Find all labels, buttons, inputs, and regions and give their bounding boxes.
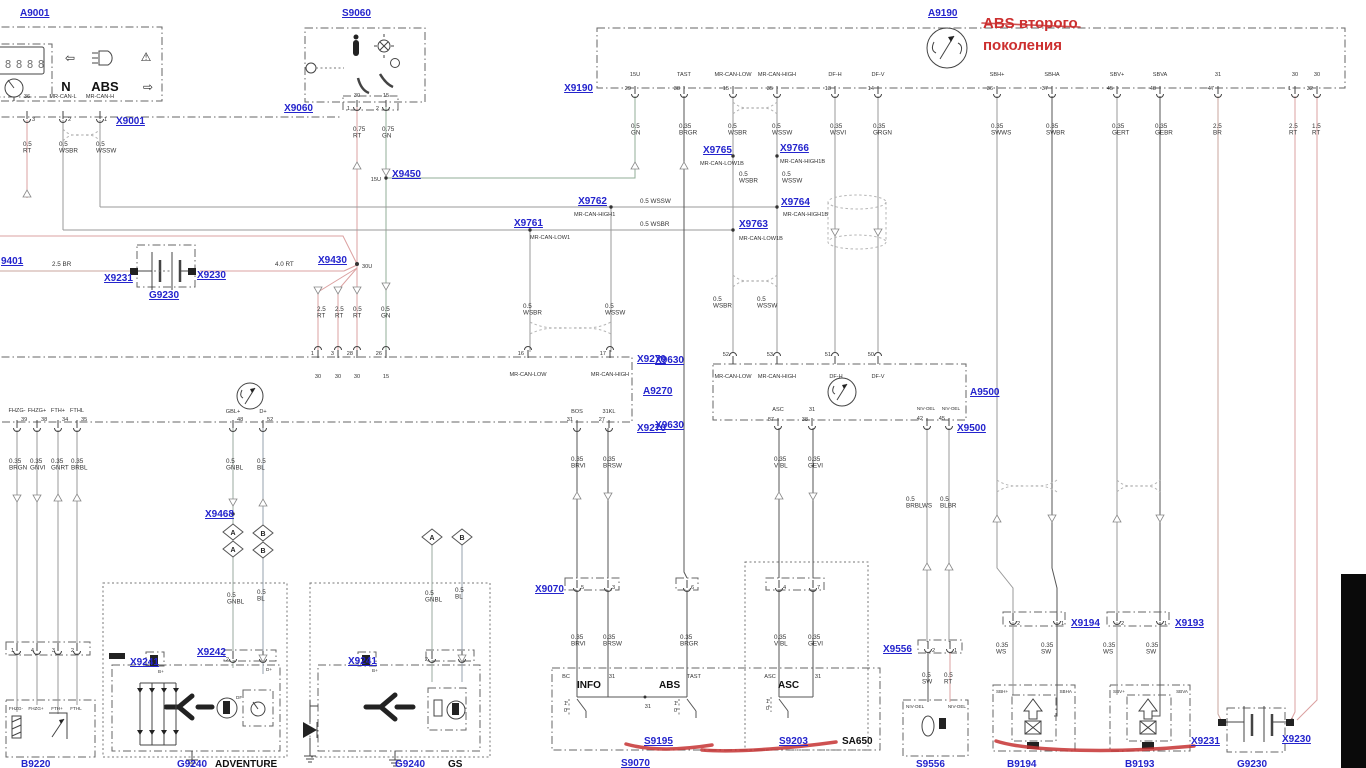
diagram-label: GBL+ xyxy=(226,409,240,415)
diagram-label: 0.35SWBR xyxy=(1046,123,1065,137)
box-battery-g9230-rear xyxy=(1227,708,1285,752)
diagram-label: 52 xyxy=(267,417,273,423)
ref-s9070[interactable]: S9070 xyxy=(621,758,650,768)
diagram-label: 1 xyxy=(766,699,769,705)
diagram-label: FTH+ xyxy=(51,408,65,414)
ref-s9060[interactable]: S9060 xyxy=(342,8,371,19)
ref-x9070[interactable]: X9070 xyxy=(535,584,564,595)
diagram-label: B xyxy=(459,535,464,542)
diagram-label: 31 xyxy=(1215,72,1221,78)
diagram-label: BOS xyxy=(571,409,583,415)
diagram-label: ABS xyxy=(91,79,119,94)
diagram-label: 17 xyxy=(600,351,606,357)
diagram-label: D+ xyxy=(266,667,272,672)
ref-a9001[interactable]: A9001 xyxy=(20,8,50,19)
ref-x9761[interactable]: X9761 xyxy=(514,218,543,229)
diagram-label: 3 xyxy=(331,351,334,357)
diagram-label: 0.5WSSW xyxy=(605,303,625,317)
ref-g9230[interactable]: G9230 xyxy=(149,290,179,301)
diagram-label: 52 xyxy=(723,352,729,358)
diagram-label: 45 xyxy=(939,416,945,422)
diagram-label: 30U xyxy=(362,264,372,270)
diagram-label: 0.35GEVI xyxy=(808,634,823,648)
diagram-label: 47 xyxy=(1208,86,1214,92)
diagram-label: MR-CAN-HIGH1B xyxy=(780,159,825,165)
diagram-label: 29 xyxy=(625,86,631,92)
ref-a9190[interactable]: A9190 xyxy=(928,8,958,19)
diagram-label: 0.5WSBR xyxy=(59,141,78,155)
diagram-label: B+ xyxy=(372,668,378,673)
diagram-label: 35 xyxy=(767,86,773,92)
diagram-label: 0.35WS xyxy=(1103,642,1116,656)
diagram-label: 8 xyxy=(38,58,45,71)
diagram-label: BC xyxy=(562,674,570,680)
diagram-label: 2.5RT xyxy=(1289,123,1298,137)
ref-x9241[interactable]: X9241 xyxy=(130,657,159,668)
diagram-label: 4 xyxy=(31,648,34,654)
diagram-label: 0.5 WSSW xyxy=(640,198,671,205)
diagram-label: 38 xyxy=(41,417,47,423)
diagram-label: FHZG+ xyxy=(28,706,44,711)
diagram-label: ASC xyxy=(772,407,784,413)
diagram-label: 2.5 BR xyxy=(52,261,72,268)
ref-a9500[interactable]: A9500 xyxy=(970,387,1000,398)
ref-a9270[interactable]: A9270 xyxy=(643,386,673,397)
diagram-label: 2 xyxy=(1017,621,1020,627)
diagram-label: 0.5SW xyxy=(922,672,932,686)
diagram-label: 0.75RT xyxy=(353,126,366,140)
diagram-label: 31KL xyxy=(602,409,615,415)
diagram-label: SBV+ xyxy=(1113,689,1125,694)
ref-x9060[interactable]: X9060 xyxy=(284,103,313,114)
diagram-label: 48 xyxy=(237,417,243,423)
diagram-label: 0.35SW xyxy=(1146,642,1159,656)
diagram-label: 1 xyxy=(104,117,107,123)
diagram-label: 38 xyxy=(802,417,808,423)
diagram-label: 31 xyxy=(809,407,815,413)
ref-g9240[interactable]: G9240 xyxy=(395,759,425,768)
diagram-label: 1 xyxy=(564,701,567,707)
diagram-label: 0.35GERT xyxy=(1112,123,1130,137)
diagram-label: 0.35GNVI xyxy=(30,458,46,472)
screen-edge-artifact xyxy=(1341,574,1366,768)
diagram-label: 2 xyxy=(376,106,379,112)
diagram-label: DF-H xyxy=(829,374,842,380)
diagram-label: 0.5WSBR xyxy=(523,303,542,317)
diagram-label: FTHL xyxy=(70,408,84,414)
diagram-label: 31 xyxy=(815,674,821,680)
ref-x9763[interactable]: X9763 xyxy=(739,219,768,230)
diagram-label: B+ xyxy=(158,669,164,674)
diagram-label: 0.35BRGR xyxy=(679,123,698,137)
diagram-label: ⇦ xyxy=(65,51,75,65)
diagram-label: 42 xyxy=(917,416,923,422)
diagram-label: 27 xyxy=(599,417,605,423)
diagram-label: SBV+ xyxy=(1110,72,1124,78)
diagram-label: 4.0 RT xyxy=(275,261,294,268)
diagram-label: A xyxy=(230,547,235,554)
diagram-label: 2 xyxy=(425,657,428,663)
key-icon xyxy=(353,40,359,56)
diagram-label: 2.5RT xyxy=(317,306,326,320)
diagram-label: N xyxy=(61,79,70,94)
diagram-label: 2.5RT xyxy=(335,306,344,320)
ref-x9762[interactable]: X9762 xyxy=(578,196,607,207)
diagram-label: 31 xyxy=(645,704,651,710)
diagram-label: 0.35SWWS xyxy=(991,123,1011,137)
ref-x9468[interactable]: X9468 xyxy=(205,509,234,520)
diagram-label: SBHA xyxy=(1044,72,1060,78)
box-alternator-g9240-adventure xyxy=(103,583,287,757)
ref-x9001[interactable]: X9001 xyxy=(116,116,145,127)
diagram-label: 0.5GN xyxy=(381,306,391,320)
diagram-label: 0.5WSBR xyxy=(728,123,747,137)
diagram-label: 0.5BL xyxy=(455,587,464,601)
diagram-label: 35 xyxy=(81,417,87,423)
headlight-icon xyxy=(92,51,112,65)
diagram-label: SBVA xyxy=(1153,72,1168,78)
ref-x9231[interactable]: X9231 xyxy=(1191,736,1220,747)
diagram-label: TAST xyxy=(677,72,691,78)
ignition-switch-symbols xyxy=(306,34,400,93)
diagram-label: 0.5WSBR xyxy=(713,296,732,310)
diagram-label: 39 xyxy=(21,417,27,423)
diagram-label: FTH+ xyxy=(51,706,63,711)
diagram-label: FHZG- xyxy=(9,706,24,711)
ref-g9230[interactable]: G9230 xyxy=(1237,759,1267,768)
diagram-label: 0.35BRSW xyxy=(603,634,622,648)
diagram-label: MR-CAN-LOW xyxy=(715,72,753,78)
diagram-label: SA650 xyxy=(842,736,873,747)
diagram-label: MR-CAN-LOW xyxy=(510,372,548,378)
diagram-label: 0.5RT xyxy=(944,672,953,686)
diagram-label: GS xyxy=(448,759,463,768)
ref-x9242[interactable]: X9242 xyxy=(197,647,226,658)
box-abs-unit-a9190 xyxy=(597,28,1345,88)
diagram-label: 0.5WSSW xyxy=(772,123,792,137)
diagram-label: ADVENTURE xyxy=(215,759,278,768)
diagram-label: 0.35GEVI xyxy=(808,456,823,470)
ref-b9220[interactable]: B9220 xyxy=(21,759,51,768)
ref-x9231[interactable]: X9231 xyxy=(104,273,133,284)
diagram-label: 5 xyxy=(581,585,584,591)
ref-9401[interactable]: 9401 xyxy=(1,256,24,267)
ref-x9241[interactable]: X9241 xyxy=(348,656,377,667)
diagram-label: 8 xyxy=(16,58,23,71)
wiring-diagram: A9001S9060A9190X9190X9001X9060X9450X9765… xyxy=(0,0,1366,768)
diagram-label: D+ xyxy=(259,409,266,415)
diagram-label: 0.5 WSBR xyxy=(640,221,670,228)
diagram-label: ⇨ xyxy=(143,80,153,94)
diagram-label: 0.5WSBR xyxy=(739,171,758,185)
diagram-label: INFO xyxy=(577,680,601,691)
diagram-label: 0.35BRVI xyxy=(571,456,586,470)
diagram-label: 6 xyxy=(691,585,694,591)
box-battery-g9230 xyxy=(137,245,195,287)
ref-x9630[interactable]: X9630 xyxy=(655,420,684,431)
diagram-label: 1 xyxy=(311,351,314,357)
diagram-label: 0.35BRBL xyxy=(71,458,88,472)
diagram-label: SBH+ xyxy=(996,689,1008,694)
diagram-label: 4 xyxy=(783,585,786,591)
diagram-label: 48 xyxy=(1150,86,1156,92)
diagram-label: 0.35BRSW xyxy=(603,456,622,470)
diagram-label: 0 xyxy=(766,706,769,712)
diagram-label: 30 xyxy=(1292,72,1298,78)
ref-x9193[interactable]: X9193 xyxy=(1175,618,1204,629)
diagram-label: 0.5GNBL xyxy=(425,590,443,604)
diagram-label: 0.35BRVI xyxy=(571,634,586,648)
sensor-b9220-symbols xyxy=(12,713,67,739)
diagram-label: 14 xyxy=(868,86,874,92)
box-a9270 xyxy=(0,357,632,422)
diagram-label: 15U xyxy=(371,177,381,183)
ref-x9450[interactable]: X9450 xyxy=(392,169,421,180)
diagram-label: 0 xyxy=(564,708,567,714)
diagram-label: MR-CAN-LOW1 xyxy=(530,235,570,241)
diagram-label: 0.35GNRT xyxy=(51,458,69,472)
diagram-label: 1.5RT xyxy=(1312,123,1321,137)
ref-x9766[interactable]: X9766 xyxy=(780,143,809,154)
diagram-label: 2 xyxy=(68,117,71,123)
diagram-label: MR-CAN-LOW1B xyxy=(700,161,744,167)
diagram-label: 2 xyxy=(226,657,229,663)
diagram-label: 37 xyxy=(1042,86,1048,92)
diagram-label: FHZG+ xyxy=(28,408,47,414)
ref-x9230[interactable]: X9230 xyxy=(1282,734,1311,745)
ref-x9500[interactable]: X9500 xyxy=(957,423,986,434)
diagram-label: DF-V xyxy=(871,72,884,78)
diagram-label: MR-CAN-HIGH1B xyxy=(783,212,828,218)
diagram-label: 1 xyxy=(347,106,350,112)
diagram-label: 0.5WSSW xyxy=(782,171,802,185)
diagram-label: 34 xyxy=(62,417,68,423)
diagram-label: SBVA xyxy=(1176,689,1189,694)
ref-x9194[interactable]: X9194 xyxy=(1071,618,1100,629)
diagram-label: NIV-OEL xyxy=(917,406,936,411)
diagram-label: 0.35WS xyxy=(996,642,1009,656)
diagram-label: 1 xyxy=(954,648,957,654)
diagram-label: 30 xyxy=(335,374,341,380)
diagram-label: DF-H xyxy=(828,72,841,78)
diagram-label: 15 xyxy=(383,374,389,380)
annotation-text: ABS второго xyxy=(983,15,1078,32)
ref-x9190[interactable]: X9190 xyxy=(564,83,593,94)
diagram-label: 51 xyxy=(825,352,831,358)
diagram-label: FHZG- xyxy=(8,408,25,414)
wire-arrows xyxy=(13,162,1164,662)
red-underline-b9194-b9193 xyxy=(996,741,1194,750)
diagram-label: 0.5BRBLWS xyxy=(906,496,932,510)
diagram-label: 0.35WSVI xyxy=(830,123,846,137)
diagram-label: 36 xyxy=(24,94,30,100)
diagram-label: NIV-OEL xyxy=(906,704,925,709)
diagram-label: NIV-OEL xyxy=(948,704,967,709)
diagram-label: DF xyxy=(236,695,242,700)
diagram-label: 53 xyxy=(767,352,773,358)
ref-s9195[interactable]: S9195 xyxy=(644,736,673,747)
diagram-label: 87 xyxy=(768,417,774,423)
ref-s9203[interactable]: S9203 xyxy=(779,736,808,747)
diagram-label: 30 xyxy=(315,374,321,380)
diagram-label: MR-CAN-HIGH xyxy=(758,374,796,380)
diagram-label: 15U xyxy=(630,72,640,78)
diagram-label: 0.5RT xyxy=(23,141,32,155)
diagram-label: MR-CAN-HIGH xyxy=(591,372,629,378)
diagram-label: 0.35VIBL xyxy=(774,456,788,470)
diagram-label: SBHA xyxy=(1059,689,1072,694)
ref-x9230[interactable]: X9230 xyxy=(197,270,226,281)
diagram-label: SBH+ xyxy=(990,72,1005,78)
diagram-label: 1 xyxy=(1061,621,1064,627)
diagram-label: MR-CAN-HIGH1 xyxy=(574,212,615,218)
diagram-label: 0.5BLBR xyxy=(940,496,957,510)
ref-x9764[interactable]: X9764 xyxy=(781,197,810,208)
diagram-label: 0.35BRGR xyxy=(680,634,699,648)
diagram-label: 3 xyxy=(52,648,55,654)
diagram-label: A xyxy=(230,530,235,537)
ref-x9556[interactable]: X9556 xyxy=(883,644,912,655)
diagram-label: 32 xyxy=(1307,86,1313,92)
diagram-label: ASC xyxy=(778,680,799,691)
diagram-label: A xyxy=(429,535,434,542)
connector-x9242 xyxy=(224,650,276,661)
diagram-label: 0.35GEBR xyxy=(1155,123,1173,137)
diagram-label: 38 xyxy=(674,86,680,92)
diagram-label: ⚠ xyxy=(141,50,152,64)
connector-gs xyxy=(426,650,474,661)
diagram-label: 0.35BRGN xyxy=(9,458,28,472)
diagram-label: MR-CAN-LOW xyxy=(715,374,753,380)
box-switch-unit-s9070 xyxy=(552,668,880,750)
red-underline-s9203 xyxy=(702,742,836,751)
diagram-label: 15 xyxy=(383,93,389,99)
diagram-label: 0.35VIBL xyxy=(774,634,788,648)
box-instrument-cluster-a9001 xyxy=(0,27,162,101)
diagram-label: 3 xyxy=(32,117,35,123)
sensor-b9194 xyxy=(1012,695,1056,749)
diagram-label: 30 xyxy=(354,374,360,380)
diagram-label: 31 xyxy=(609,674,615,680)
diagram-label: 0.35SW xyxy=(1041,642,1054,656)
alternator-gs-symbols xyxy=(303,655,465,766)
diagram-label: 2 xyxy=(932,648,935,654)
annotation-text: поколения xyxy=(983,37,1062,54)
diagram-label: 8 xyxy=(5,58,12,71)
diagram-label: TAST xyxy=(687,674,701,680)
diagram-label: 1 xyxy=(11,648,14,654)
diagram-label: 0.75GN xyxy=(382,126,395,140)
labels-layer: A9001S9060A9190X9190X9001X9060X9450X9765… xyxy=(0,8,1321,768)
box-option-sa650 xyxy=(745,562,868,750)
ref-g9240[interactable]: G9240 xyxy=(177,759,207,768)
ref-b9194[interactable]: B9194 xyxy=(1007,759,1037,768)
diagram-label: 3 xyxy=(612,585,615,591)
diagram-label: MR-CAN-HIGH xyxy=(758,72,796,78)
diagram-label: 31 xyxy=(567,417,573,423)
box-alternator-g9240-gs xyxy=(310,583,490,757)
ref-x9765[interactable]: X9765 xyxy=(703,145,732,156)
diagram-label: 1 xyxy=(1288,86,1291,92)
diagram-label: 0 xyxy=(674,708,677,714)
diagram-label: 0.5GNBL xyxy=(227,592,245,606)
diagram-label: 0.5BL xyxy=(257,589,266,603)
regulator-adventure xyxy=(243,690,273,726)
diagram-label: 15 xyxy=(723,86,729,92)
connector-pins xyxy=(14,86,1321,663)
diagram-label: 1 xyxy=(1164,621,1167,627)
diagram-label: ASC xyxy=(764,674,776,680)
diagram-label: 16 xyxy=(518,351,524,357)
diagram-label: MR-CAN-L xyxy=(49,94,76,100)
diagram-label: MR-CAN-H xyxy=(86,94,114,100)
diagram-label: NIV-OEL xyxy=(942,406,961,411)
diagram-label: 8 xyxy=(27,58,34,71)
diagram-label: 2 xyxy=(71,648,74,654)
ref-b9193[interactable]: B9193 xyxy=(1125,759,1155,768)
ref-x9430[interactable]: X9430 xyxy=(318,255,347,266)
diagram-label: ABS xyxy=(659,680,680,691)
diagram-label: DF-V xyxy=(871,374,884,380)
alternator-adventure-symbols xyxy=(109,653,265,766)
diagram-label: 45 xyxy=(1107,86,1113,92)
diagram-label: 30 xyxy=(1314,72,1320,78)
connector-x9070-c xyxy=(766,578,824,590)
box-a9500 xyxy=(713,364,966,420)
diagram-label: 0.5RT xyxy=(353,306,362,320)
oil-level-float xyxy=(922,716,934,736)
diagram-label: 1 xyxy=(674,701,677,707)
diagram-label: FTHL xyxy=(70,706,82,711)
ref-x9630[interactable]: X9630 xyxy=(655,355,684,366)
diagram-label: 28 xyxy=(347,351,353,357)
diagram-label: 50 xyxy=(868,352,874,358)
diagram-label: 0.5BL xyxy=(257,458,266,472)
diagram-label: 0.35GRGN xyxy=(873,123,892,137)
diagram-label: B xyxy=(260,531,265,538)
ref-s9556[interactable]: S9556 xyxy=(916,759,945,768)
diagram-label: 2.5BR xyxy=(1213,123,1222,137)
diagram-label: 30 xyxy=(354,93,360,99)
sensor-b9193 xyxy=(1127,695,1171,749)
diagram-label: 36 xyxy=(987,86,993,92)
diagram-label: B xyxy=(260,548,265,555)
diagram-label: 0.5WSSW xyxy=(96,141,116,155)
diagram-label: 0.5GN xyxy=(631,123,641,137)
diagram-label: 13 xyxy=(825,86,831,92)
diagram-label: MR-CAN-LOW1B xyxy=(739,236,783,242)
wiring-diagram-page: A9001S9060A9190X9190X9001X9060X9450X9765… xyxy=(0,0,1366,768)
diagram-label: 0.5WSSW xyxy=(757,296,777,310)
diagram-label: 26 xyxy=(376,351,382,357)
wires-layer xyxy=(0,96,1317,722)
diagram-label: 0.5GNBL xyxy=(226,458,244,472)
diagram-label: 7 xyxy=(817,585,820,591)
diagram-label: 2 xyxy=(1121,621,1124,627)
